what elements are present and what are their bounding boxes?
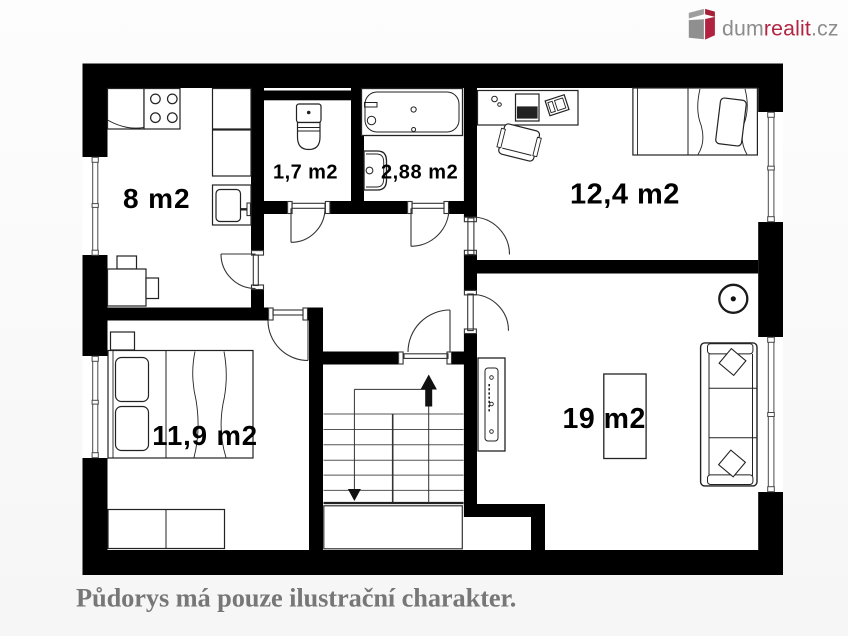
svg-text:8 m2: 8 m2: [123, 183, 190, 214]
svg-text:Půdorys má pouze ilustrační ch: Půdorys má pouze ilustrační charakter.: [76, 583, 516, 613]
svg-text:19 m2: 19 m2: [563, 403, 646, 435]
svg-text:11,9 m2: 11,9 m2: [152, 420, 258, 451]
svg-text:1,7 m2: 1,7 m2: [273, 162, 338, 184]
svg-text:2,88 m2: 2,88 m2: [381, 162, 458, 184]
svg-text:dumrealit.cz: dumrealit.cz: [722, 17, 839, 41]
svg-text:12,4 m2: 12,4 m2: [570, 179, 680, 211]
